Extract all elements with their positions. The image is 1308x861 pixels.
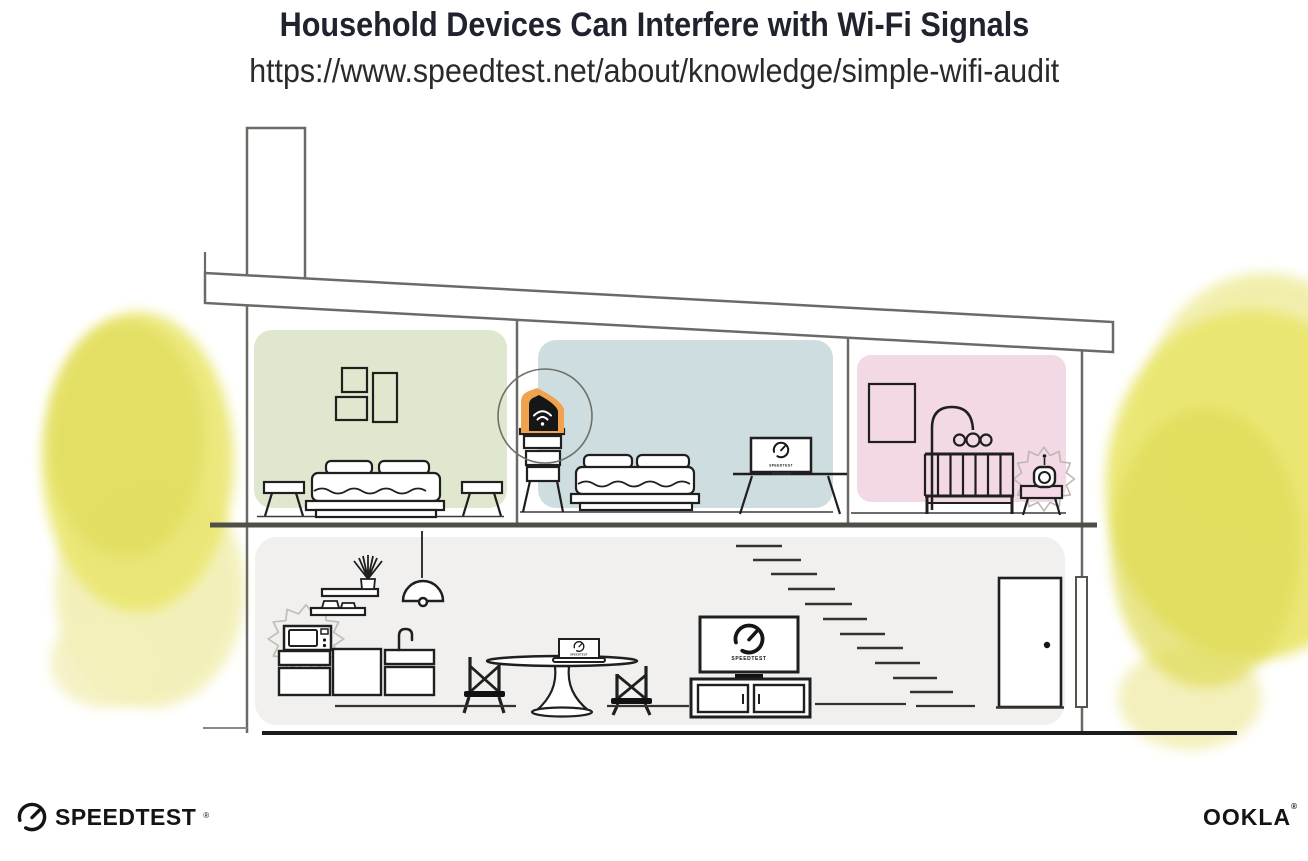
desk-monitor: SPEEDTEST	[751, 438, 811, 475]
speedtest-trademark: ®	[203, 811, 209, 820]
ookla-wordmark: OOKLA	[1203, 804, 1291, 830]
entry-door	[996, 578, 1064, 708]
media-console	[691, 679, 810, 717]
monitor-screen-label: SPEEDTEST	[769, 464, 793, 468]
speedtest-wordmark: SPEEDTEST	[55, 804, 196, 831]
tv-area: SPEEDTEST	[691, 617, 810, 717]
tv: SPEEDTEST	[700, 617, 798, 678]
ookla-trademark: ®	[1291, 802, 1298, 811]
ground-floor-wall	[255, 537, 1065, 725]
foliage-left	[42, 312, 245, 708]
foliage-right	[1106, 273, 1308, 750]
door-knob	[1044, 642, 1050, 648]
door-sidelight	[1076, 577, 1087, 707]
ookla-logo: OOKLA®	[1203, 804, 1298, 831]
chimney	[247, 128, 305, 279]
speedtest-gauge-icon	[16, 801, 48, 833]
microwave	[284, 626, 331, 650]
plant-pot	[361, 579, 375, 589]
speedtest-logo: SPEEDTEST®	[16, 801, 209, 833]
house-illustration: SPEEDTEST	[0, 0, 1308, 861]
laptop-screen-label: SPEEDTEST	[570, 654, 588, 657]
kitchen-cabinets	[279, 649, 434, 695]
tv-screen-label: SPEEDTEST	[731, 656, 766, 662]
laptop: SPEEDTEST	[553, 639, 605, 662]
